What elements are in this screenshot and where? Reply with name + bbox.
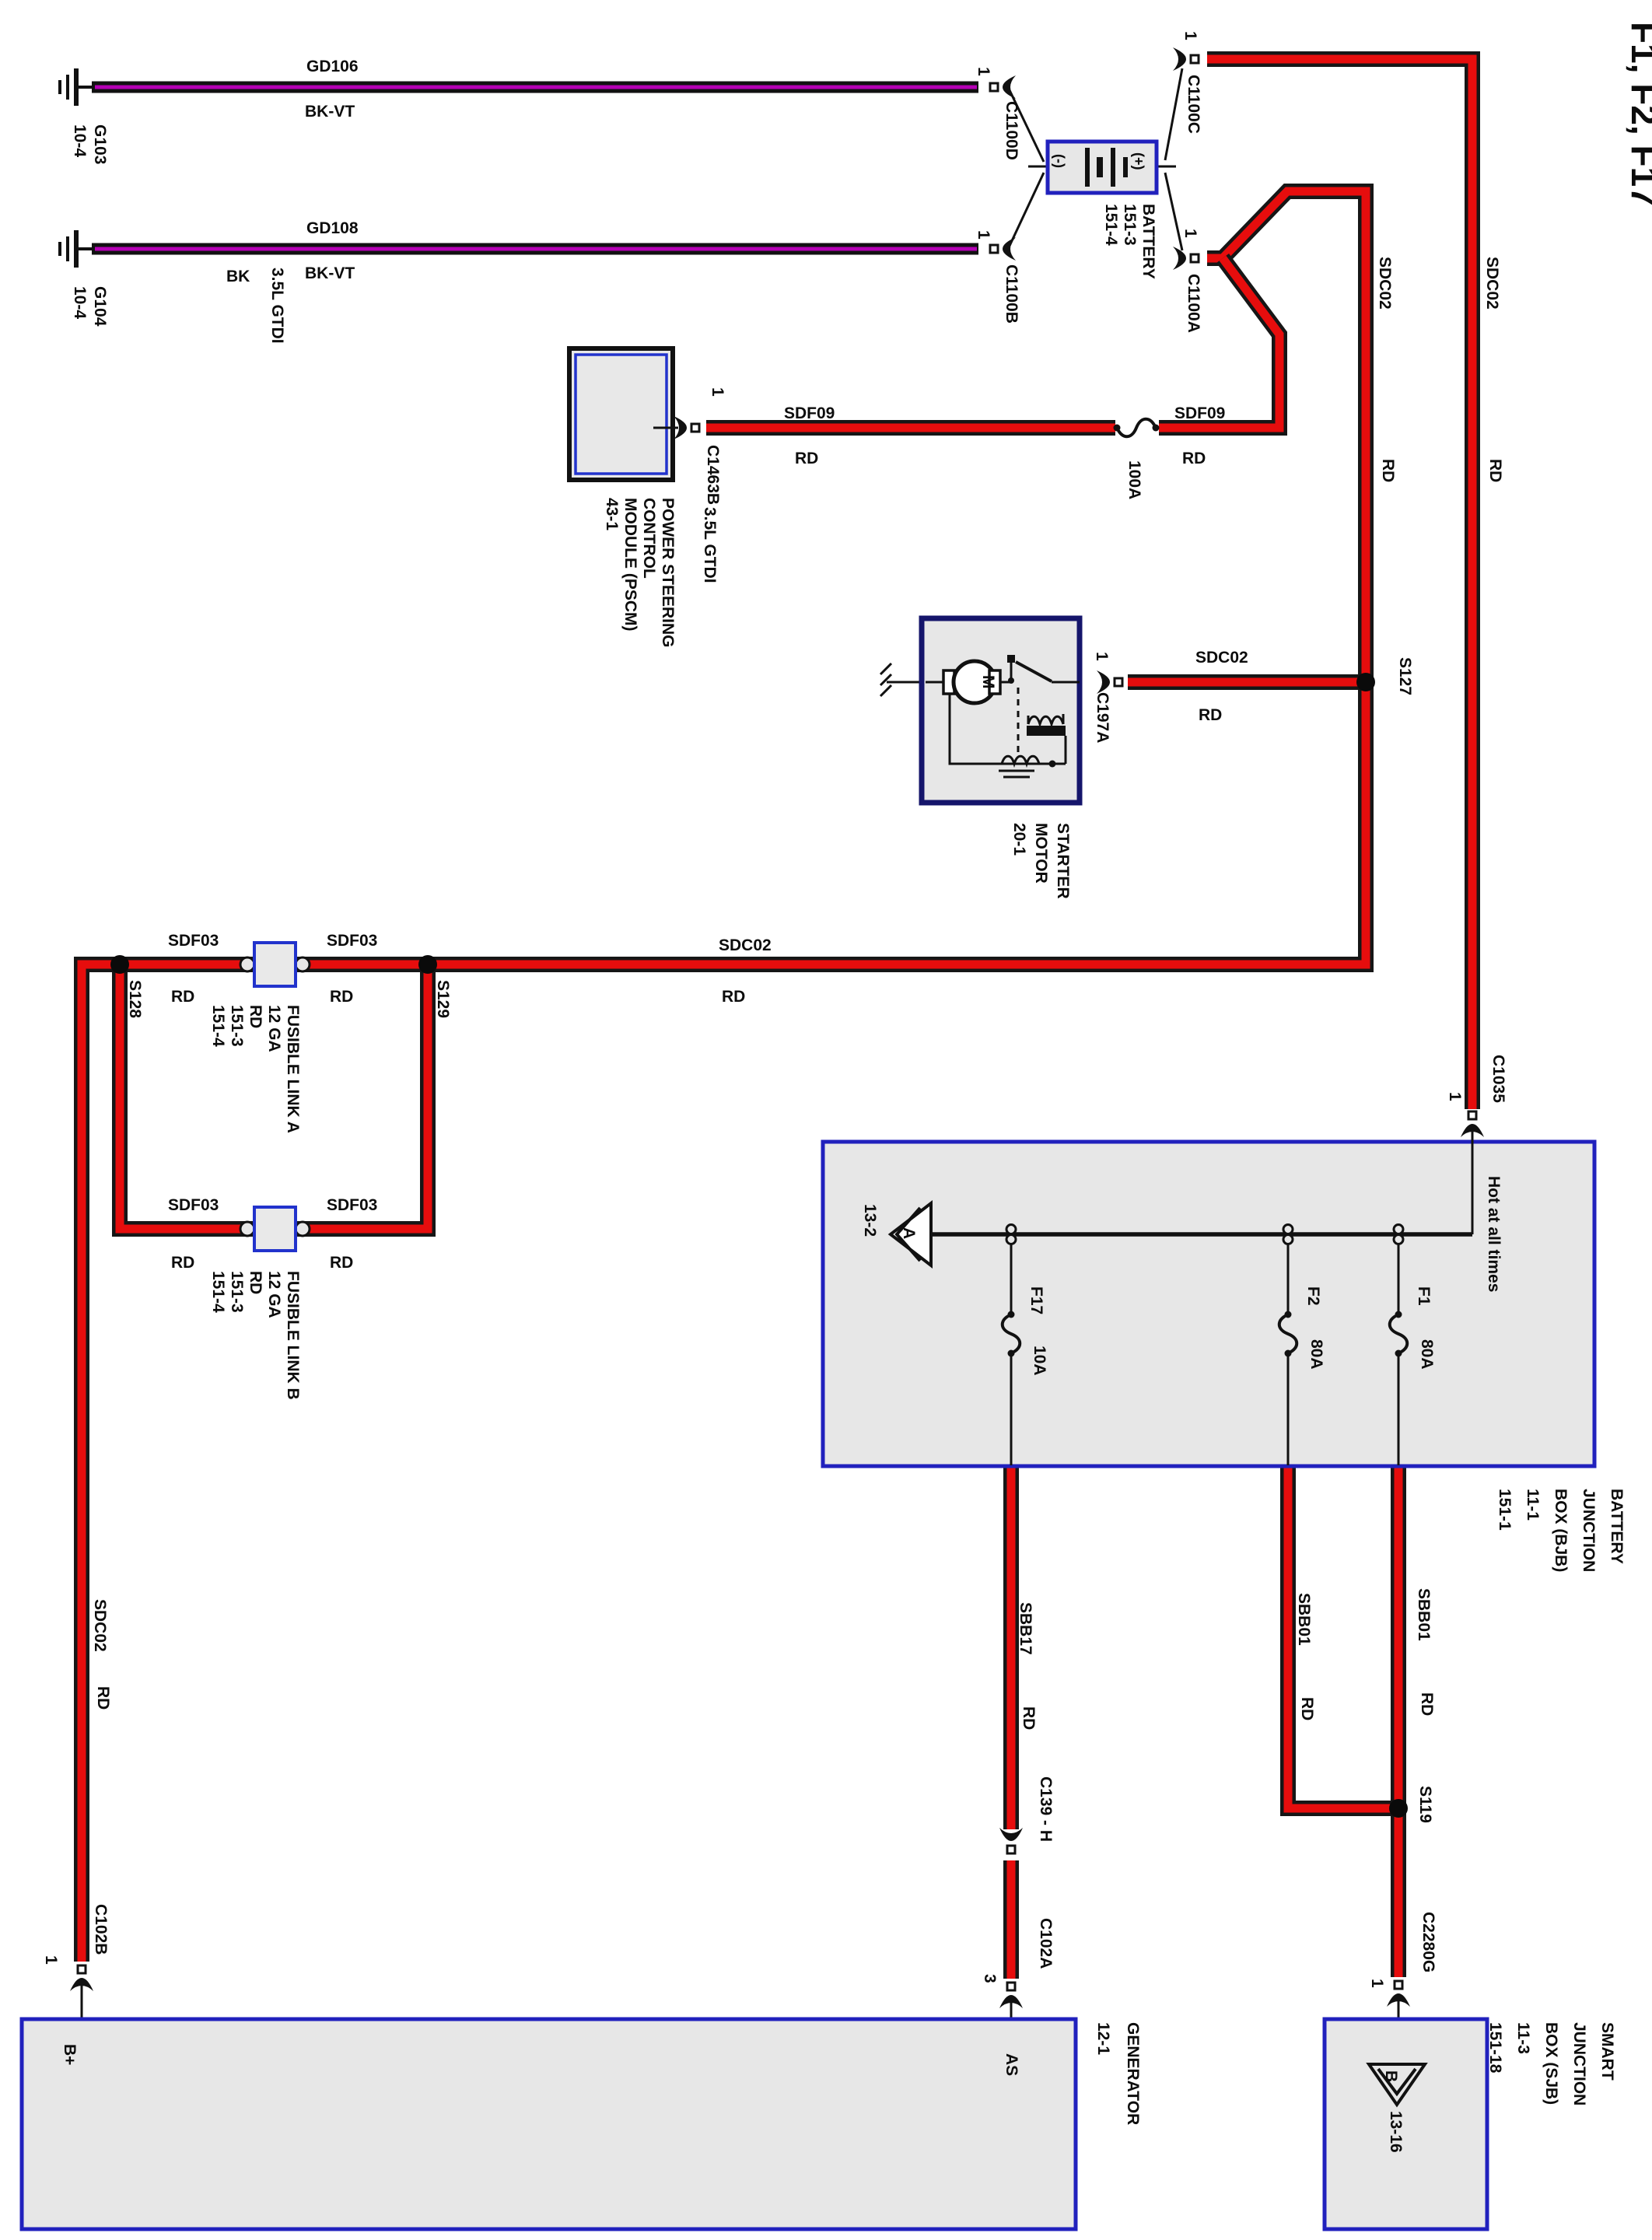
sdf09-left-name: SDF09: [784, 404, 835, 422]
c1463b-pin: 1: [709, 387, 726, 397]
sdc02-left-name: SDC02: [91, 1599, 109, 1652]
c2280g-label: C2280G: [1419, 1912, 1437, 1972]
sdf03-a-right-color: RD: [330, 988, 353, 1006]
sjb-ref-13-16: 13-16: [1387, 2111, 1405, 2153]
link-b-line4: 151-3: [228, 1271, 246, 1313]
sjb-line3: BOX (SJB): [1542, 2022, 1560, 2105]
sdc02-left-color: RD: [94, 1686, 112, 1710]
battery-line2: 151-3: [1121, 204, 1139, 246]
battery-line3: 151-4: [1102, 204, 1120, 246]
c102a-label: C102A: [1037, 1918, 1055, 1969]
sdc02-starter-name: SDC02: [1195, 649, 1248, 667]
c102b-pin: 1: [42, 1955, 60, 1965]
c1100b-label: C1100B: [1003, 264, 1020, 324]
sjb-box: [1325, 2019, 1487, 2229]
c197a-pin: 1: [1093, 652, 1111, 661]
sdf03-b-right-color: RD: [330, 1254, 353, 1272]
c1463b-label: C1463B: [704, 445, 722, 505]
gtdi-top-label: 3.5L GTDI: [268, 268, 286, 344]
gd108-name: GD108: [306, 219, 359, 237]
sjb-line2: JUNCTION: [1570, 2022, 1588, 2105]
generator-box: [22, 2019, 1076, 2229]
sbb01-f1-color: RD: [1418, 1692, 1436, 1716]
splice-s127-dot: [1356, 673, 1375, 691]
splice-s128-dot: [110, 955, 129, 974]
c1100d-label: C1100D: [1003, 101, 1020, 160]
c1100a-pin: 1: [1181, 229, 1199, 238]
generator-as-pin: AS: [1003, 2053, 1020, 2076]
g104-label: G104: [91, 286, 109, 327]
pscm-line3: MODULE (PSCM): [621, 498, 639, 632]
gtdi-pscm-label: 3.5L GTDI: [701, 507, 719, 583]
sdf03-a-right-name: SDF03: [327, 932, 377, 950]
bjb-line5: 151-1: [1496, 1489, 1514, 1531]
sbb17-name: SBB17: [1017, 1602, 1034, 1655]
fusible-link-b-box: [254, 1207, 296, 1251]
s128-label: S128: [126, 980, 144, 1018]
bjb-line2: JUNCTION: [1580, 1489, 1598, 1572]
bk-label: BK: [226, 268, 250, 285]
fuse-f17-name: F17: [1027, 1286, 1045, 1314]
link-a-line2: 12 GA: [265, 1005, 283, 1052]
c1100a-label: C1100A: [1185, 274, 1202, 333]
generator-line2: 12-1: [1094, 2022, 1112, 2055]
starter-line2: MOTOR: [1032, 823, 1050, 884]
sdf09-right-name: SDF09: [1174, 404, 1225, 422]
link-b-line2: 12 GA: [265, 1271, 283, 1318]
starter-line1: STARTER: [1054, 823, 1072, 899]
fuse-f2-amp: 80A: [1307, 1339, 1325, 1370]
starter-box: [922, 618, 1080, 803]
c197a-label: C197A: [1094, 692, 1111, 743]
sbb01-f2-name: SBB01: [1295, 1593, 1313, 1646]
wiring-diagram-page: F1, F2, F17 G103 10-4 G104 10-4 GD106 BK…: [0, 0, 1652, 2240]
g103-ref: 10-4: [71, 124, 89, 157]
battery-pos: (+): [1131, 152, 1146, 170]
gd106-color: BK-VT: [305, 103, 355, 121]
splice-s129-dot: [418, 955, 437, 974]
c1100d-pin: 1: [975, 67, 992, 76]
sdf09-right-color: RD: [1182, 450, 1206, 467]
bjb-box: [823, 1142, 1594, 1466]
sdc02-starter-color: RD: [1199, 706, 1222, 724]
sjb-arrow-b-letter: B: [1382, 2070, 1400, 2082]
fuse-f2-name: F2: [1304, 1286, 1322, 1306]
link-b-line3: RD: [247, 1271, 264, 1294]
generator-line1: GENERATOR: [1124, 2022, 1142, 2125]
sjb-line1: SMART: [1598, 2022, 1616, 2081]
sbb01-f2-color: RD: [1298, 1697, 1316, 1720]
sdc02-main-name: SDC02: [719, 936, 772, 954]
link-a-line4: 151-3: [228, 1005, 246, 1047]
link-a-line5: 151-4: [209, 1005, 227, 1047]
c139-label: C139 - H: [1037, 1776, 1055, 1842]
bjb-hot-label: Hot at all times: [1485, 1176, 1503, 1292]
bjb: [823, 1111, 1594, 1466]
link-b-line1: FUSIBLE LINK B: [284, 1271, 302, 1400]
g103-label: G103: [91, 124, 109, 164]
sbb01-f1-name: SBB01: [1415, 1588, 1433, 1641]
c1035-pin: 1: [1446, 1092, 1464, 1101]
link-a-line3: RD: [247, 1005, 264, 1028]
sdc02-outer-name: SDC02: [1483, 257, 1501, 310]
c102b-label: C102B: [92, 1904, 110, 1955]
splice-s119-dot: [1389, 1799, 1408, 1818]
bjb-line4: 11-1: [1524, 1489, 1542, 1521]
link-a-terminal-left: [240, 957, 254, 971]
sdf03-b-left-color: RD: [171, 1254, 194, 1272]
sdc02-main-color: RD: [722, 988, 745, 1006]
link-b-terminal-right: [296, 1222, 310, 1236]
sjb: [1325, 2019, 1487, 2229]
sdf03-b-left-name: SDF03: [168, 1196, 219, 1214]
c2280g-pin: 1: [1368, 1979, 1386, 1988]
starter-line3: 20-1: [1010, 823, 1028, 856]
g104-ref: 10-4: [71, 286, 89, 319]
c1100b-pin: 1: [975, 230, 992, 240]
link-b-terminal-left: [240, 1222, 254, 1236]
sdc02-inner-name: SDC02: [1376, 257, 1394, 310]
sjb-line5: 151-18: [1486, 2022, 1504, 2074]
s129-label: S129: [434, 980, 452, 1018]
generator: [22, 2019, 1076, 2229]
sjb-line4: 11-3: [1514, 2022, 1532, 2054]
sdf03-a-left-color: RD: [171, 988, 194, 1006]
c1100c-label: C1100C: [1185, 75, 1202, 134]
fuse-f1-name: F1: [1415, 1286, 1433, 1306]
sdc02-inner-color: RD: [1379, 459, 1397, 482]
c1035-label: C1035: [1489, 1055, 1507, 1103]
s119-label: S119: [1416, 1786, 1434, 1823]
gd106-name: GD106: [306, 58, 359, 75]
c1100c-pin: 1: [1181, 31, 1199, 40]
pscm-line1: POWER STEERING: [659, 498, 677, 648]
link-b-line5: 151-4: [209, 1271, 227, 1313]
page-title: F1, F2, F17: [1624, 22, 1652, 207]
s127-label: S127: [1396, 657, 1414, 695]
pscm-box: [569, 348, 673, 480]
sbb17-color: RD: [1020, 1706, 1038, 1730]
generator-bplus-pin: B+: [61, 2044, 79, 2065]
bjb-line1: BATTERY: [1608, 1489, 1626, 1564]
fuse-f1-amp: 80A: [1418, 1339, 1436, 1370]
starter-motor-m: M: [979, 675, 997, 689]
battery-line1: BATTERY: [1139, 204, 1157, 279]
bjb-line3: BOX (BJB): [1552, 1489, 1570, 1572]
pscm-line2: CONTROL: [640, 498, 658, 579]
link-100a-label: 100A: [1125, 460, 1143, 499]
sdf03-b-right-name: SDF03: [327, 1196, 377, 1214]
sdf03-a-left-name: SDF03: [168, 932, 219, 950]
c102a-pin: 3: [981, 1974, 999, 1983]
pscm-line4: 43-1: [603, 498, 621, 530]
sdf09-left-color: RD: [795, 450, 818, 467]
gd108-color: BK-VT: [305, 264, 355, 282]
fuse-f17-amp: 10A: [1031, 1346, 1048, 1376]
fusible-link-a-box: [254, 943, 296, 986]
battery-neg: (-): [1052, 154, 1067, 168]
bjb-arrow-a-letter: A: [900, 1227, 918, 1239]
link-a-line1: FUSIBLE LINK A: [284, 1005, 302, 1133]
bjb-ref-13-2: 13-2: [861, 1204, 879, 1237]
sdc02-outer-color: RD: [1486, 459, 1504, 482]
link-a-terminal-right: [296, 957, 310, 971]
